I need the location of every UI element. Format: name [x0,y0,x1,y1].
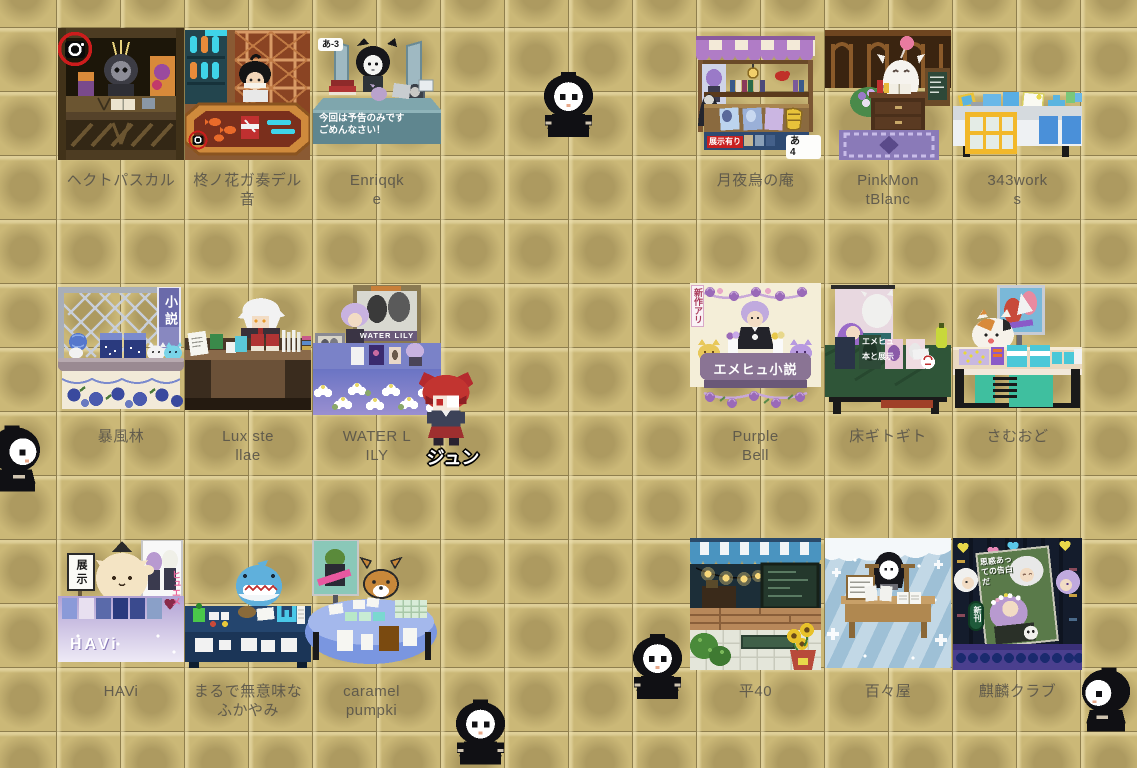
avatar-reaper-1[interactable] [540,72,597,138]
booth-name-label: Purple Bell [681,427,831,465]
booth-name-label: 平40 [681,682,831,701]
venue-floor[interactable]: ヘクトパスカル [0,0,1137,768]
booth-art: 展示有り あ 4 [690,34,821,160]
avatar-jun[interactable] [415,372,477,448]
slot-tag: あ 4 [786,135,821,159]
camera-icon [188,130,208,150]
booth-name-label: 柊ノ花ガ奏デル 音 [173,171,323,209]
booth-purple-bell[interactable]: 新作アリ エメヒュ小説 Purple Bell [690,283,821,415]
booth-art [185,298,311,410]
booth-momoya[interactable]: 百々屋 [825,538,951,668]
booth-name-label: さむおど [943,427,1093,446]
booth-samuodo[interactable]: さむおど [953,285,1082,415]
booth-art [953,285,1082,415]
avatar-reaper-5[interactable] [1078,666,1134,734]
booth-lux-stellae[interactable]: Lux ste llae [185,298,311,410]
booth-boufuurin[interactable]: 小説 暴風林 [58,287,184,415]
poster-caption: WATER LILY [357,331,417,341]
booth-name-label: 百々屋 [813,682,963,701]
table-text: エメヒュ小説 [700,359,811,378]
booth-tsukiyodori-no-iori[interactable]: 展示有り あ 4 月夜烏の庵 [690,34,821,160]
booth-art: 新刊 思惑あっての告白だ [953,538,1082,670]
booth-name-label: 月夜烏の庵 [681,171,831,190]
booth-art: 小説 [58,287,184,415]
character-name-label: ジュン [393,444,513,470]
exhibit-sign: 展示 [73,559,89,587]
new-release-banner: 新作アリ [691,285,704,327]
booth-caramel-pumpki[interactable]: caramel pumpki [303,540,440,665]
booth-343works[interactable]: 343work s [953,92,1082,157]
notice-text: 今回は予告のみです ごめんなさい！ [319,113,429,137]
booth-enriqqke[interactable]: あ-3 今回は予告のみです ごめんなさい！ Enriqqk e [313,36,441,156]
avatar-reaper-4[interactable] [452,697,509,768]
booth-art [303,540,440,665]
avatar-reaper-2[interactable] [0,423,44,495]
booth-havi[interactable]: 展示 ヒュエメ HAVi HAVi [58,540,184,668]
booth-hiiragi-no-hana[interactable]: 柊ノ花ガ奏デル 音 [185,30,310,160]
booth-pinkmontblanc[interactable]: PinkMon tBlanc [825,30,951,162]
booth-art [825,538,951,668]
booth-art [953,92,1082,157]
booth-name-label: Enriqqk e [302,171,452,209]
slot-tag: あ-3 [318,38,343,51]
booth-art: 展示 ヒュエメ HAVi [58,540,184,668]
booth-marude-muimina-fukayami[interactable]: まるで無意味な ふかやみ [185,560,311,668]
booth-kirin-club[interactable]: 新刊 思惑あっての告白だ 麒麟クラブ [953,538,1082,670]
poster-text: エメヒュ 本と展示 [861,334,895,364]
booth-art [690,538,821,670]
booth-name-label: 343work s [943,171,1093,209]
novel-banner: 小説 [161,295,180,329]
booth-name-label: 麒麟クラブ [943,682,1093,701]
booth-yuka-gitogito[interactable]: エメヒュ 本と展示 床ギトギト [825,285,951,415]
booth-hira40[interactable]: 平40 [690,538,821,670]
booth-art: あ-3 今回は予告のみです ごめんなさい！ [313,36,441,156]
booth-hectopascal[interactable]: ヘクトパスカル [58,28,184,160]
booth-art [185,560,311,668]
booth-name-label: PinkMon tBlanc [813,171,963,209]
avatar-reaper-3[interactable] [629,634,686,700]
booth-name-label: 床ギトギト [813,427,963,446]
table-text: HAVi [70,636,119,654]
camera-icon [56,30,94,68]
exhibit-tag: 展示有り [707,136,743,148]
booth-name-label: Lux ste llae [173,427,323,465]
booth-art [825,30,951,162]
booth-art [185,30,310,160]
booth-name-label: caramel pumpki [297,682,447,720]
booth-art [58,28,184,160]
booth-art: エメヒュ 本と展示 [825,285,951,415]
booth-art: 新作アリ エメヒュ小説 [690,283,821,415]
cover-text: 思惑あっての告白だ [980,554,1021,588]
new-release-tag: 新刊 [972,606,983,622]
poster-text: ヒュエメ [170,570,183,606]
